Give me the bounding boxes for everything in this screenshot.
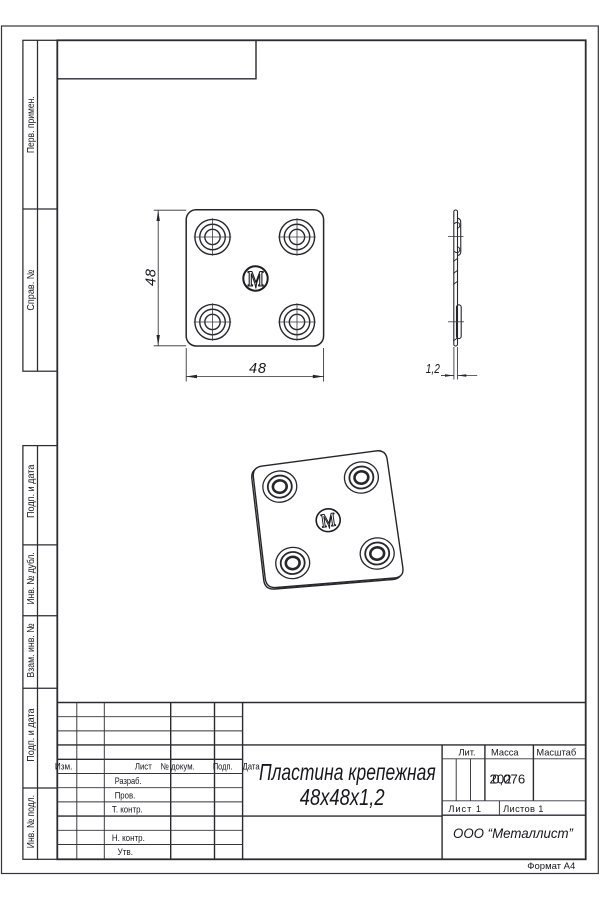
svg-text:№ докум.: № докум.: [160, 761, 194, 772]
svg-text:Лист 1: Лист 1: [448, 804, 481, 814]
svg-text:Подп. и дата: Подп. и дата: [25, 708, 37, 762]
svg-text:Лист: Лист: [135, 761, 152, 772]
svg-text:Н. контр.: Н. контр.: [112, 832, 145, 843]
svg-text:Лит.: Лит.: [458, 747, 475, 757]
svg-text:48: 48: [249, 361, 266, 377]
svg-text:Инв. № подл.: Инв. № подл.: [25, 795, 37, 848]
svg-text:Утв.: Утв.: [118, 847, 134, 858]
svg-text:Пластина крепежная: Пластина крепежная: [259, 761, 436, 786]
svg-text:Дата: Дата: [242, 761, 259, 772]
svg-text:Подп.: Подп.: [213, 761, 233, 772]
svg-text:Перв. примен.: Перв. примен.: [25, 96, 37, 153]
svg-text:Изм.: Изм.: [55, 761, 73, 772]
svg-text:ООО “Металлист”: ООО “Металлист”: [453, 826, 573, 841]
svg-text:Справ. №: Справ. №: [25, 270, 37, 311]
svg-text:Листов 1: Листов 1: [503, 804, 543, 814]
svg-text:Разраб.: Разраб.: [115, 775, 142, 786]
svg-text:Подп. и дата: Подп. и дата: [25, 464, 37, 518]
svg-text:Взам. инв. №: Взам. инв. №: [25, 623, 37, 677]
svg-text:Пров.: Пров.: [115, 790, 136, 801]
svg-text:Формат А4: Формат А4: [527, 861, 575, 872]
svg-text:Инв. № дубл.: Инв. № дубл.: [24, 552, 36, 604]
svg-text:Т. контр.: Т. контр.: [112, 804, 143, 815]
svg-text:Масса: Масса: [491, 747, 519, 757]
svg-text:202: 202: [489, 771, 511, 786]
svg-text:1,2: 1,2: [426, 362, 441, 376]
svg-text:Масштаб: Масштаб: [536, 747, 576, 757]
svg-text:48х48х1,2: 48х48х1,2: [300, 785, 385, 810]
svg-text:48: 48: [144, 269, 160, 286]
